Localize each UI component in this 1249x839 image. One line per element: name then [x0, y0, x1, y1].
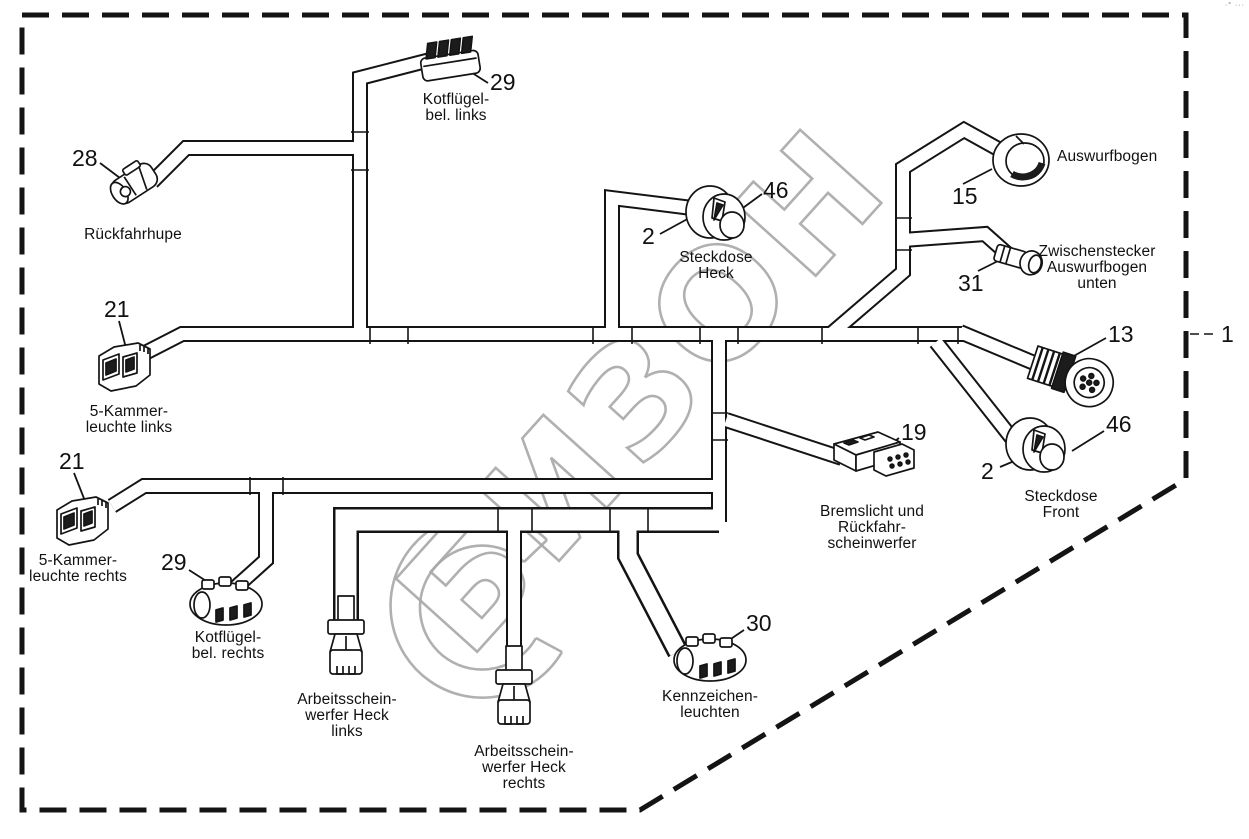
connector-kammerleuchte-rechts-icon [57, 497, 108, 545]
label-zwischenstecker: Zwischenstecker Auswurfbogen unten [1012, 244, 1182, 292]
connector-rueckfahrhupe-icon [104, 156, 161, 208]
label-kammerleuchte-rechts: 5-Kammer- leuchte rechts [0, 553, 156, 585]
label-kotfluegel-links: Kotflügel- bel. links [376, 92, 536, 124]
connector-rundstecker-icon [1025, 341, 1120, 413]
corner-mark: ·° ··· [1225, 2, 1245, 9]
connector-kennzeichenleuchten-icon [674, 634, 746, 681]
connector-auswurfbogen-icon [993, 134, 1049, 186]
connector-kotfluegel-rechts-icon [190, 577, 262, 625]
ref-19-bremslicht: 19 [901, 420, 927, 444]
label-bremslicht: Bremslicht und Rückfahr- scheinwerfer [792, 504, 952, 552]
connector-kotfluegel-links-icon [418, 36, 481, 82]
label-auswurfbogen: Auswurfbogen [1057, 149, 1227, 165]
connector-kammerleuchte-links-icon [99, 343, 150, 391]
ref-21-kammer-rechts: 21 [59, 449, 85, 473]
ref-30-kennzeichen: 30 [746, 611, 772, 635]
ref-1-harness: 1 [1221, 322, 1234, 346]
label-kennzeichenleuchten: Kennzeichen- leuchten [630, 689, 790, 721]
ref-46-steckdose-heck: 46 [763, 178, 789, 202]
connector-steckdose-front-icon [1006, 418, 1065, 472]
ref-15-auswurfbogen: 15 [952, 184, 978, 208]
label-kotfluegel-rechts: Kotflügel- bel. rechts [148, 630, 308, 662]
label-steckdose-heck: Steckdose Heck [636, 250, 796, 282]
label-rueckfahrhupe: Rückfahrhupe [43, 227, 223, 243]
ref-2-steckdose-front: 2 [981, 459, 994, 483]
ref-46-steckdose-front: 46 [1106, 412, 1132, 436]
label-steckdose-front: Steckdose Front [981, 489, 1141, 521]
label-arbeitsscheinwerfer-links: Arbeitsschein- werfer Heck links [267, 692, 427, 740]
ref-29-kotfluegel-links: 29 [490, 70, 516, 94]
label-kammerleuchte-links: 5-Kammer- leuchte links [44, 404, 214, 436]
ref-21-kammer-links: 21 [104, 297, 130, 321]
parts-diagram: БИЗОН [0, 0, 1249, 839]
ref-28-rueckfahrhupe: 28 [72, 146, 98, 170]
label-arbeitsscheinwerfer-rechts: Arbeitsschein- werfer Heck rechts [444, 744, 604, 792]
ref-13-rundstecker: 13 [1108, 322, 1134, 346]
ref-2-steckdose-heck: 2 [642, 224, 655, 248]
ref-29-kotfluegel-rechts: 29 [161, 550, 187, 574]
ref-31-zwischenstecker: 31 [958, 271, 984, 295]
